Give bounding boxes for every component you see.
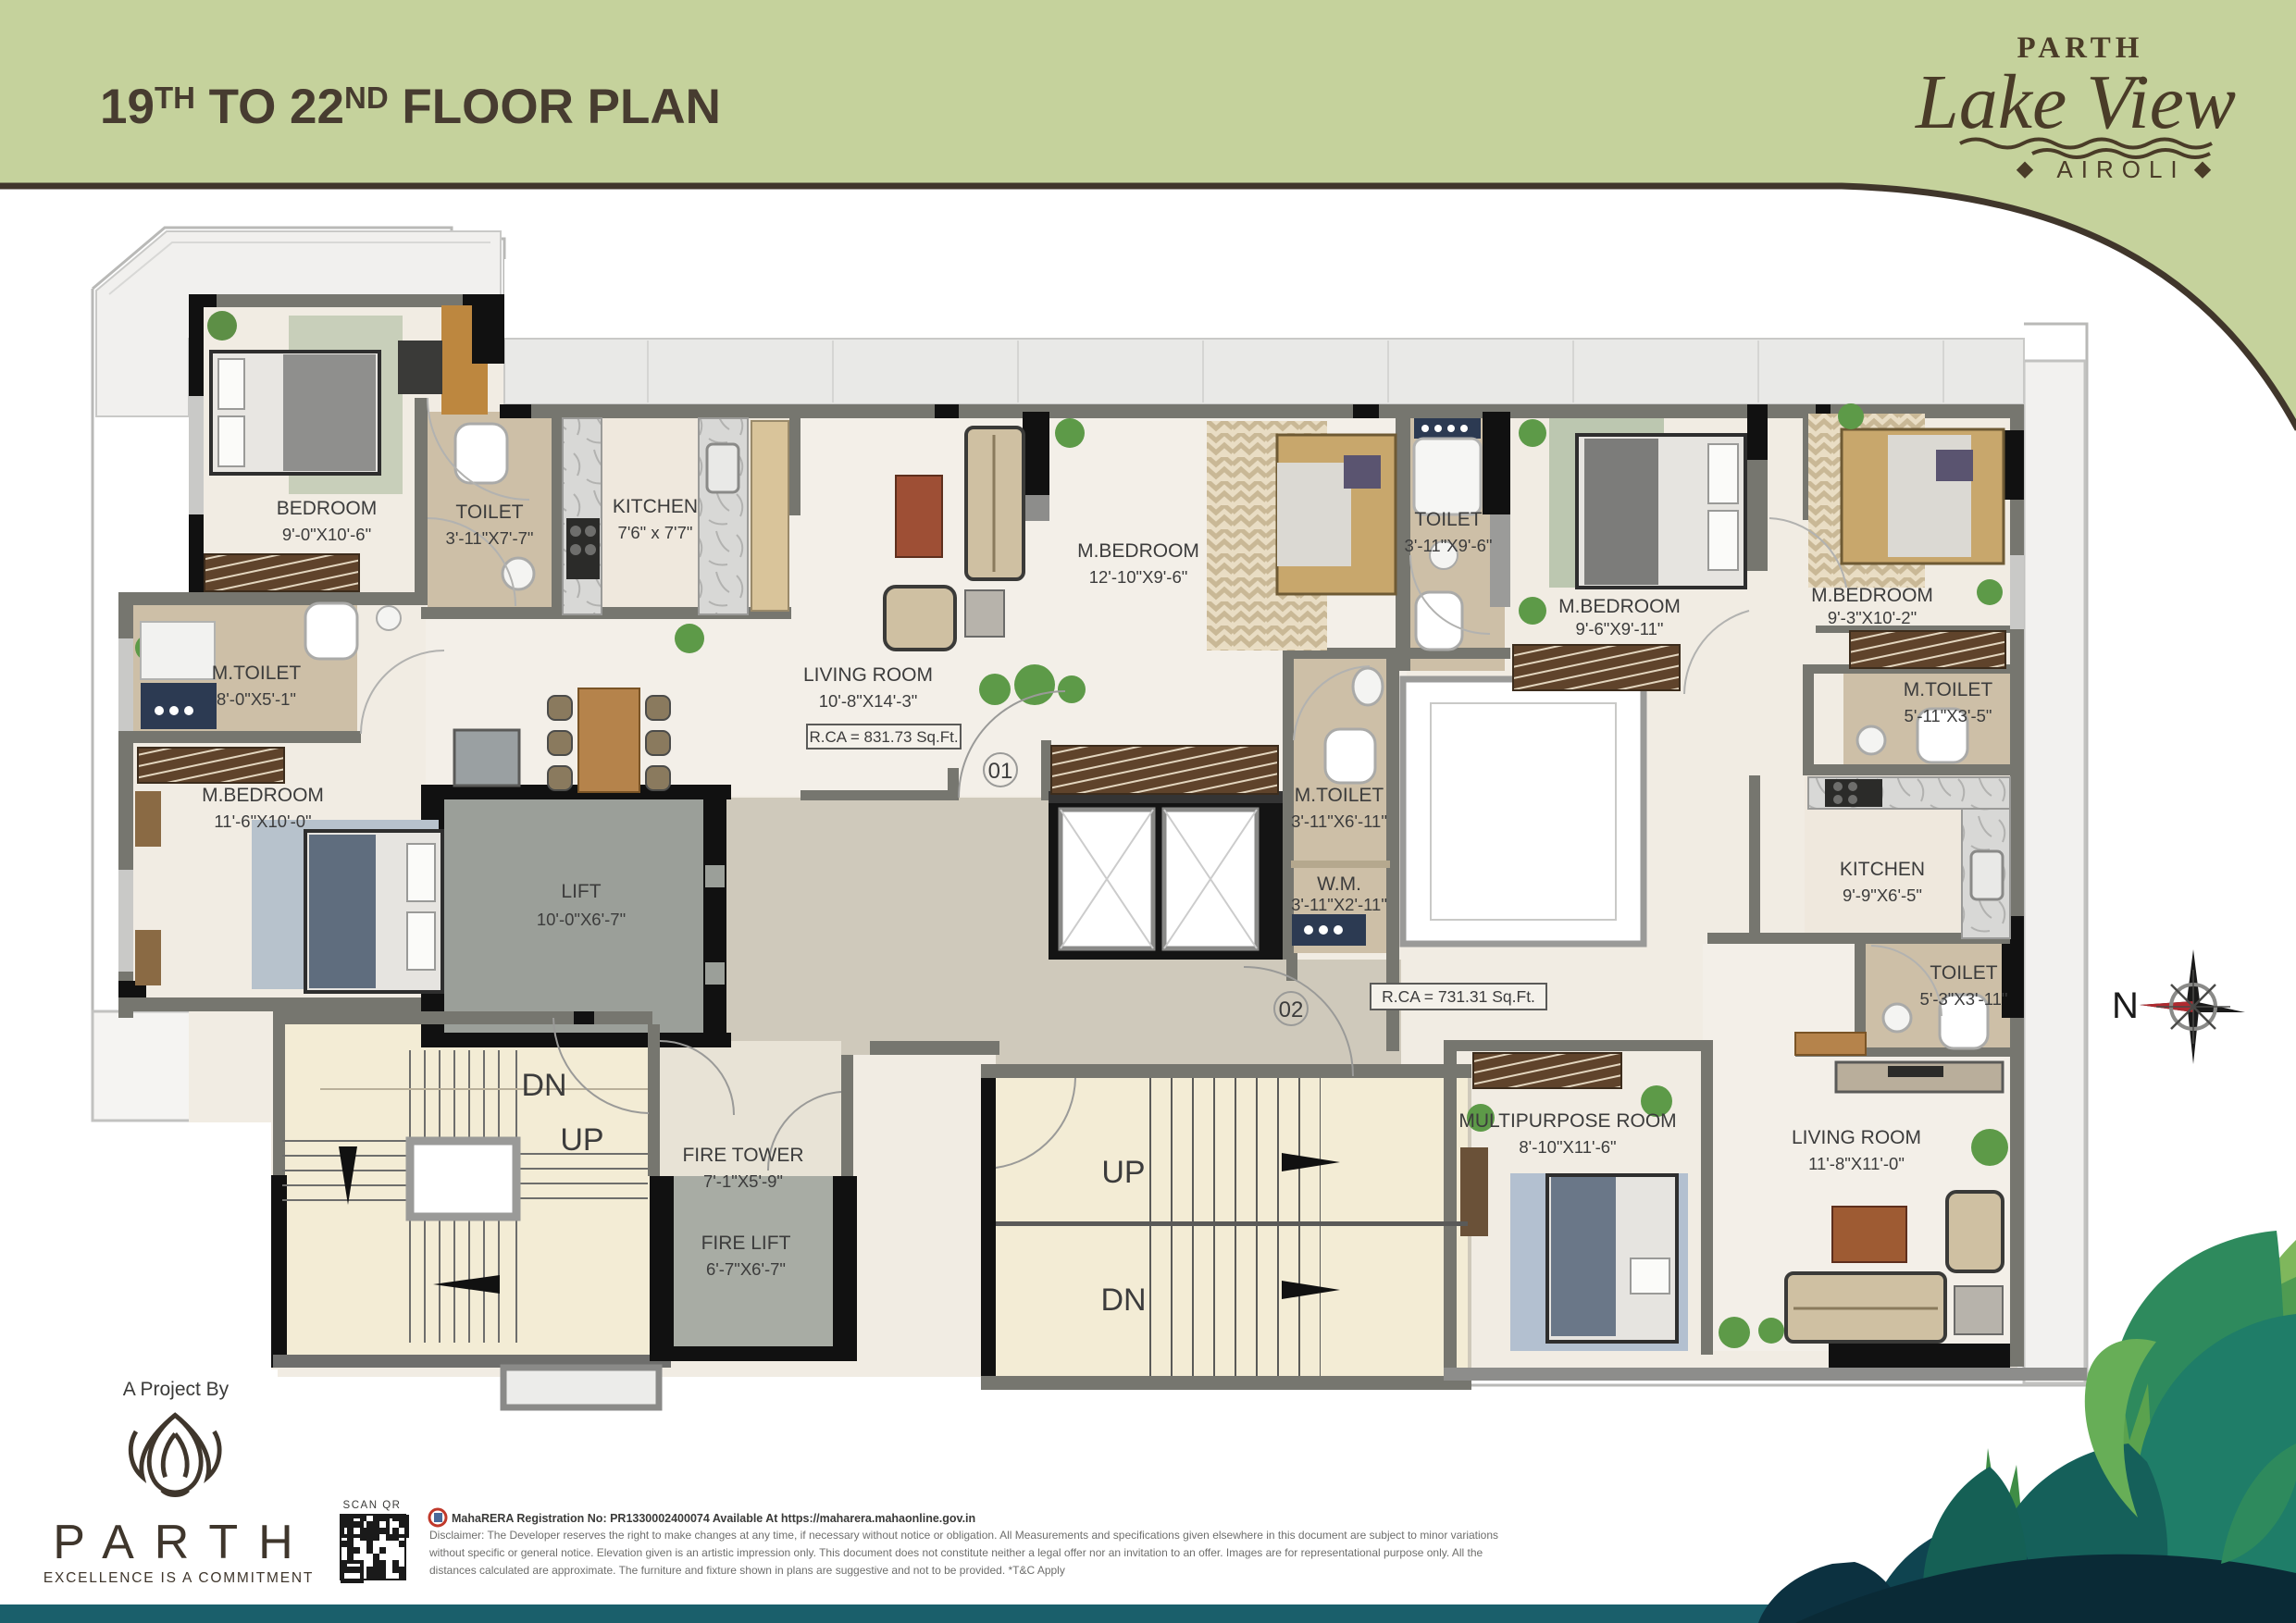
svg-text:M.TOILET: M.TOILET [212, 663, 302, 684]
svg-text:M.BEDROOM: M.BEDROOM [202, 785, 324, 806]
svg-text:9'-6"X9'-11": 9'-6"X9'-11" [1576, 619, 1664, 638]
svg-text:M.BEDROOM: M.BEDROOM [1077, 540, 1199, 562]
svg-text:LIVING ROOM: LIVING ROOM [803, 664, 933, 686]
svg-text:MULTIPURPOSE ROOM: MULTIPURPOSE ROOM [1458, 1110, 1676, 1132]
svg-text:Lake View: Lake View [1915, 59, 2236, 145]
svg-text:5'-11"X3'-5": 5'-11"X3'-5" [1905, 706, 1992, 725]
svg-text:8'-0"X5'-1": 8'-0"X5'-1" [217, 689, 296, 709]
svg-text:UP: UP [560, 1122, 603, 1158]
svg-text:LIFT: LIFT [561, 881, 601, 902]
svg-text:7'6" x 7'7": 7'6" x 7'7" [618, 523, 693, 542]
svg-text:DN: DN [521, 1068, 566, 1103]
svg-text:KITCHEN: KITCHEN [613, 496, 698, 517]
svg-text:10'-8"X14'-3": 10'-8"X14'-3" [819, 691, 918, 711]
svg-text:M.TOILET: M.TOILET [1904, 679, 1993, 700]
svg-text:without specific or general no: without specific or general notice. Elev… [428, 1546, 1483, 1559]
svg-text:M.BEDROOM: M.BEDROOM [1558, 596, 1681, 617]
svg-text:11'-8"X11'-0": 11'-8"X11'-0" [1808, 1154, 1905, 1173]
svg-text:FIRE LIFT: FIRE LIFT [701, 1233, 791, 1254]
svg-text:KITCHEN: KITCHEN [1840, 859, 1925, 880]
svg-text:W.M.: W.M. [1317, 873, 1361, 895]
svg-text:TOILET: TOILET [1414, 509, 1482, 530]
svg-text:01: 01 [988, 759, 1013, 784]
svg-text:FIRE TOWER: FIRE TOWER [682, 1145, 803, 1166]
svg-text:N: N [2112, 985, 2139, 1026]
svg-text:9'-0"X10'-6": 9'-0"X10'-6" [282, 525, 371, 544]
svg-text:9'-9"X6'-5": 9'-9"X6'-5" [1843, 886, 1922, 905]
svg-text:02: 02 [1279, 997, 1304, 1022]
svg-text:SCAN QR: SCAN QR [343, 1500, 402, 1511]
svg-text:TOILET: TOILET [455, 502, 523, 523]
svg-text:BEDROOM: BEDROOM [277, 498, 378, 519]
svg-text:Disclaimer: The Developer rese: Disclaimer: The Developer reserves the r… [429, 1529, 1498, 1542]
svg-text:6'-7"X6'-7": 6'-7"X6'-7" [706, 1259, 786, 1279]
svg-text:3'-11"X6'-11": 3'-11"X6'-11" [1291, 811, 1387, 831]
svg-text:TOILET: TOILET [1930, 962, 1997, 984]
svg-text:3'-11"X2'-11": 3'-11"X2'-11" [1291, 895, 1387, 914]
svg-text:MahaRERA Registration No: PR13: MahaRERA Registration No: PR133000240007… [452, 1512, 975, 1525]
svg-text:5'-3"X3'-11": 5'-3"X3'-11" [1920, 989, 2008, 1009]
svg-text:LIVING ROOM: LIVING ROOM [1792, 1127, 1921, 1148]
svg-text:A Project By: A Project By [123, 1379, 230, 1400]
svg-text:M.TOILET: M.TOILET [1295, 785, 1384, 806]
svg-text:7'-1"X5'-9": 7'-1"X5'-9" [703, 1171, 783, 1191]
svg-text:9'-3"X10'-2": 9'-3"X10'-2" [1828, 608, 1917, 627]
svg-text:R.CA = 831.73 Sq.Ft.: R.CA = 831.73 Sq.Ft. [809, 728, 958, 746]
svg-text:M.BEDROOM: M.BEDROOM [1811, 585, 1933, 606]
svg-text:12'-10"X9'-6": 12'-10"X9'-6" [1089, 567, 1188, 587]
svg-text:DN: DN [1100, 1282, 1146, 1318]
svg-text:distances calculated are appro: distances calculated are approximate. Th… [429, 1564, 1065, 1577]
svg-text:11'-6"X10'-0": 11'-6"X10'-0" [214, 811, 311, 831]
svg-text:PARTH: PARTH [53, 1516, 313, 1569]
svg-text:EXCELLENCE IS A COMMITMENT: EXCELLENCE IS A COMMITMENT [43, 1570, 314, 1586]
svg-text:10'-0"X6'-7": 10'-0"X6'-7" [537, 910, 626, 929]
svg-text:3'-11"X7'-7": 3'-11"X7'-7" [446, 528, 534, 548]
svg-text:R.CA = 731.31 Sq.Ft.: R.CA = 731.31 Sq.Ft. [1382, 987, 1535, 1006]
svg-text:3'-11"X9'-6": 3'-11"X9'-6" [1405, 536, 1493, 555]
svg-text:UP: UP [1101, 1155, 1145, 1190]
svg-text:8'-10"X11'-6": 8'-10"X11'-6" [1519, 1137, 1616, 1157]
svg-text:AIROLI: AIROLI [2056, 155, 2185, 183]
